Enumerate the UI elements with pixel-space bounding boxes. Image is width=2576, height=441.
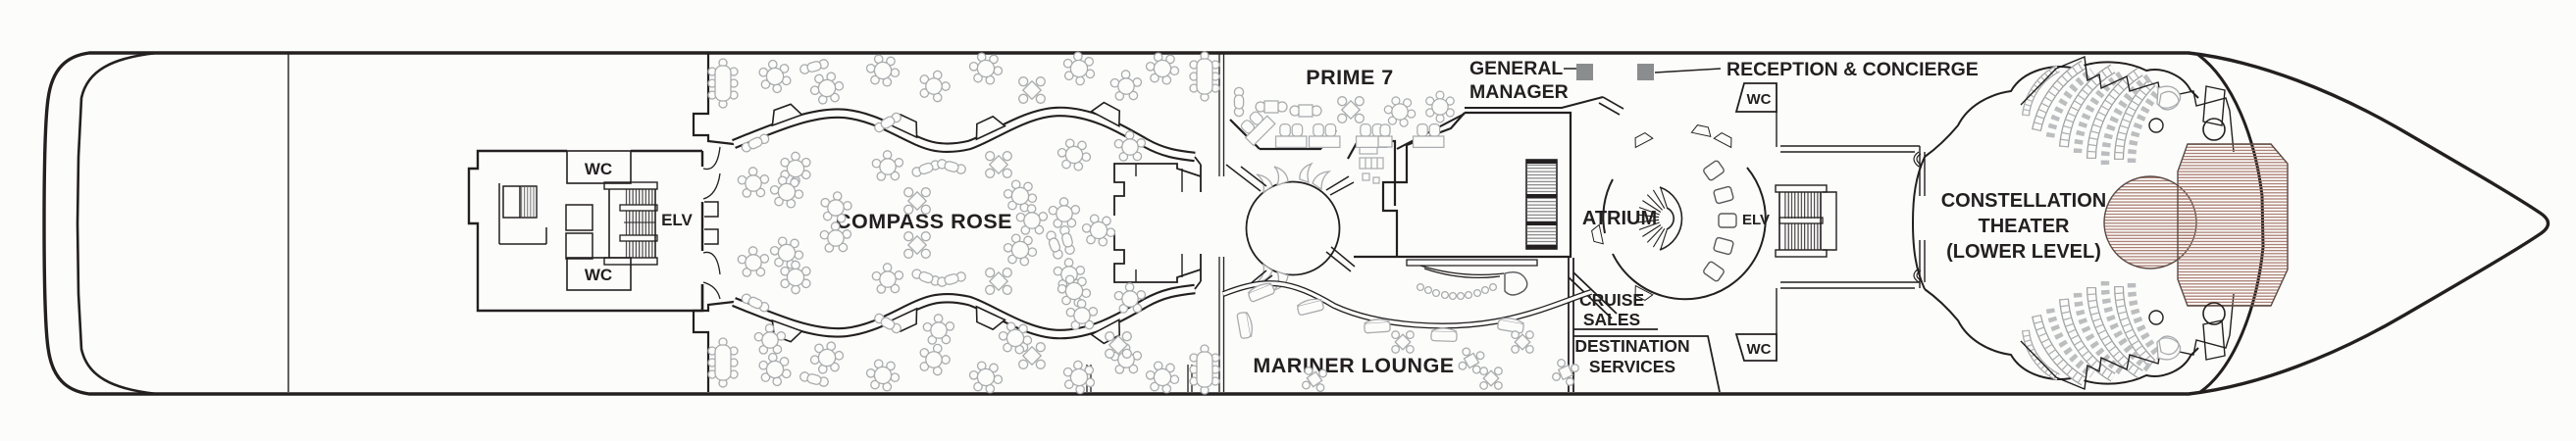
svg-text:MARINER LOUNGE: MARINER LOUNGE <box>1253 354 1454 377</box>
svg-text:WC: WC <box>1747 91 1772 108</box>
svg-text:WC: WC <box>585 266 612 284</box>
svg-text:ATRIUM: ATRIUM <box>1582 208 1657 229</box>
svg-text:(LOWER LEVEL): (LOWER LEVEL) <box>1946 241 2101 263</box>
svg-text:ELV: ELV <box>661 211 693 229</box>
svg-text:ELV: ELV <box>1742 212 1770 228</box>
svg-text:MANAGER: MANAGER <box>1469 81 1569 103</box>
svg-text:SALES: SALES <box>1583 310 1640 329</box>
svg-text:DESTINATION: DESTINATION <box>1574 336 1689 356</box>
svg-text:PRIME 7: PRIME 7 <box>1306 66 1394 89</box>
svg-text:WC: WC <box>1747 341 1772 358</box>
svg-text:SERVICES: SERVICES <box>1589 357 1675 376</box>
svg-text:GENERAL: GENERAL <box>1469 58 1563 79</box>
svg-text:CONSTELLATION: CONSTELLATION <box>1941 190 2107 212</box>
svg-text:RECEPTION & CONCIERGE: RECEPTION & CONCIERGE <box>1726 59 1979 80</box>
svg-text:THEATER: THEATER <box>1979 216 2071 237</box>
svg-text:WC: WC <box>585 160 612 178</box>
